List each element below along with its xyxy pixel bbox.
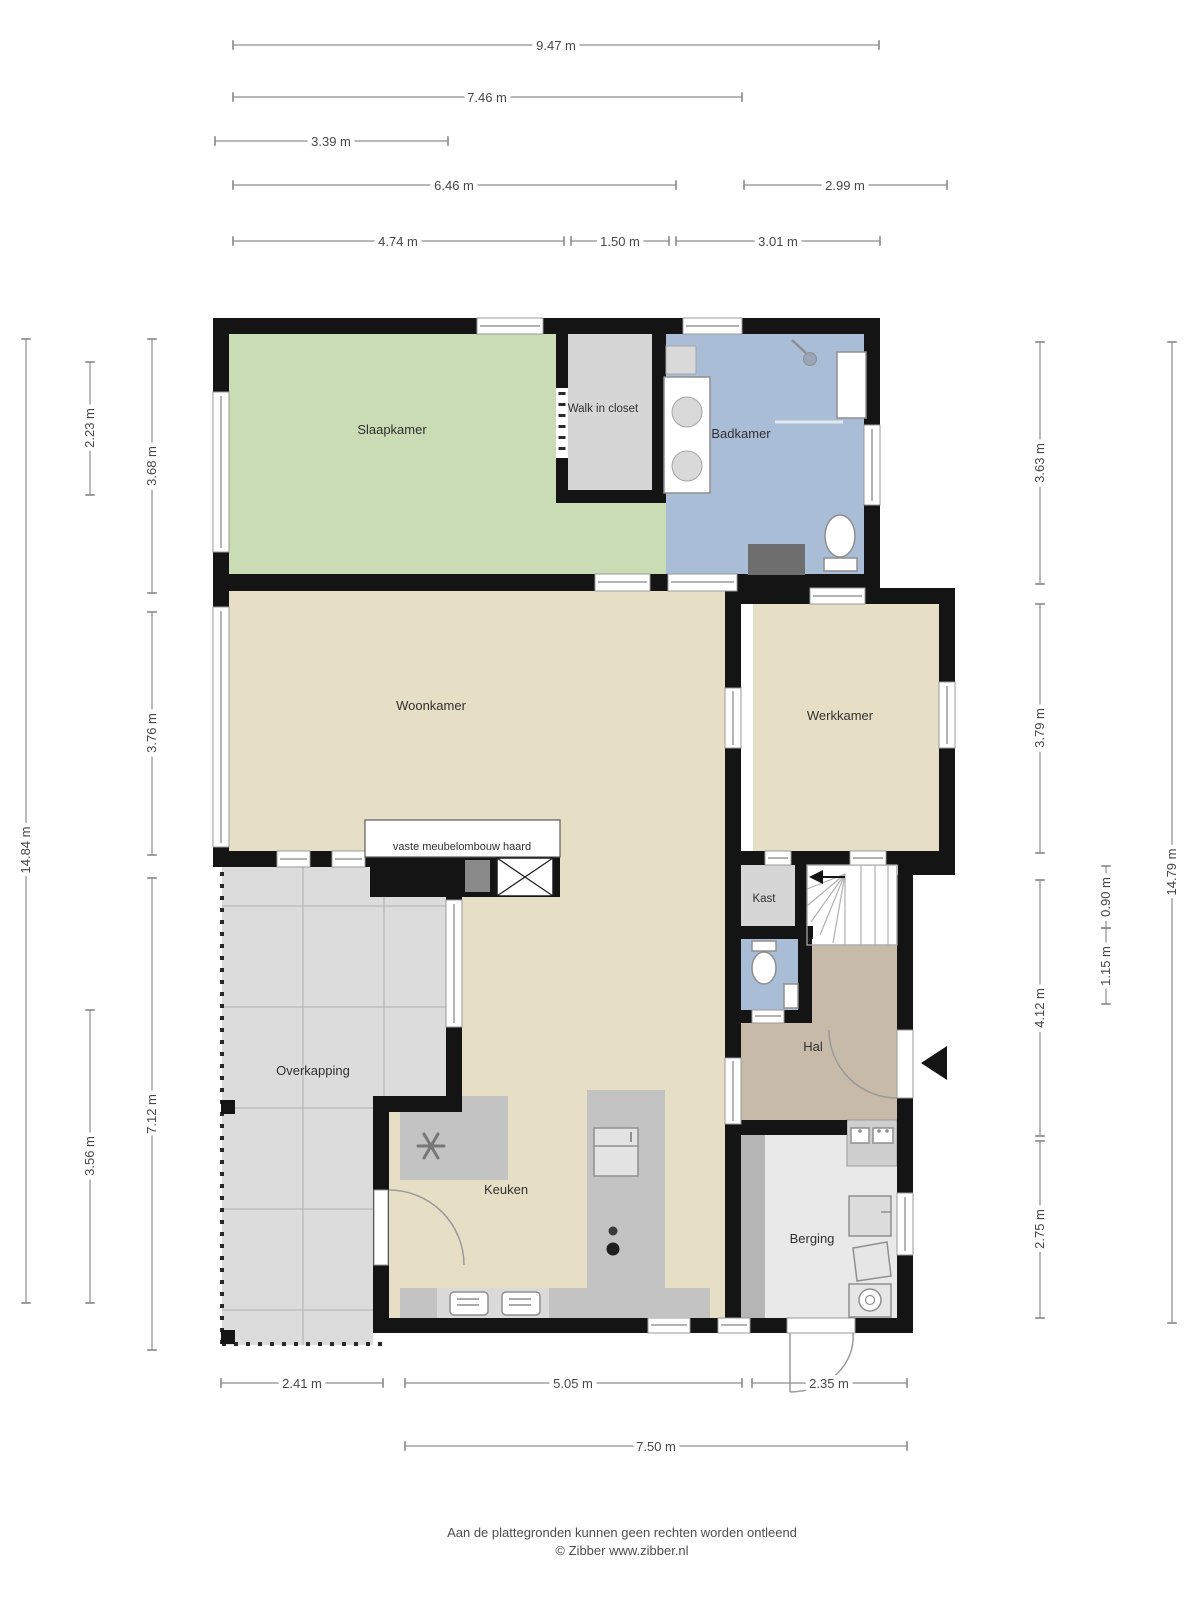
kitchen-island — [587, 1090, 665, 1290]
oven-icon — [502, 1292, 540, 1315]
label-walkincloset: Walk in closet — [568, 403, 639, 415]
window — [595, 574, 650, 591]
footer-disclaimer: Aan de plattegronden kunnen geen rechten… — [447, 1525, 797, 1540]
room-werkkamer-floor — [753, 604, 939, 851]
window — [850, 851, 886, 865]
room-keuken-floor — [462, 897, 725, 1096]
wall — [737, 1120, 847, 1135]
door-wc — [752, 1010, 784, 1023]
dimension-label: 5.05 m — [553, 1376, 593, 1391]
washing-machine-icon — [849, 1284, 891, 1317]
window — [332, 851, 365, 867]
label-overkapping: Overkapping — [276, 1063, 350, 1078]
berging-cabinet-strip — [741, 1135, 765, 1318]
dimension-label: 6.46 m — [434, 178, 474, 193]
room-slaapkamer-floor — [556, 503, 666, 575]
dimension-label: 3.39 m — [311, 134, 351, 149]
label-werkkamer: Werkkamer — [807, 708, 874, 723]
sink-icon — [672, 397, 702, 427]
dimension-label: 9.47 m — [536, 38, 576, 53]
post — [221, 1100, 235, 1114]
shower-niche — [837, 352, 866, 418]
oven-icon — [450, 1292, 488, 1315]
dimension-label: 2.75 m — [1032, 1209, 1047, 1249]
toilet-icon — [824, 515, 857, 571]
window — [213, 392, 229, 552]
sink-icon — [672, 451, 702, 481]
dimension-label: 2.23 m — [82, 408, 97, 448]
dimension-label: 7.12 m — [144, 1094, 159, 1134]
door-hal-keuken — [725, 1058, 741, 1124]
footer-credit: © Zibber www.zibber.nl — [555, 1543, 688, 1558]
dimension-label: 2.41 m — [282, 1376, 322, 1391]
label-keuken: Keuken — [484, 1182, 528, 1197]
dimensions-bottom: 2.41 m 5.05 m 2.35 m 7.50 m — [221, 1376, 907, 1454]
dimension-label: 1.15 m — [1098, 946, 1113, 986]
dimension-label: 14.79 m — [1164, 849, 1179, 896]
bathroom-cabinet — [666, 346, 696, 374]
wall — [213, 318, 880, 334]
footer: Aan de plattegronden kunnen geen rechten… — [447, 1525, 797, 1558]
window — [477, 318, 543, 334]
window — [939, 682, 955, 748]
fridge-icon — [594, 1128, 638, 1176]
dimension-label: 2.99 m — [825, 178, 865, 193]
dimensions-left: 2.23 m 3.68 m 3.76 m 14.84 m 7.12 m 3.56… — [18, 339, 159, 1350]
window — [897, 1193, 913, 1255]
dimension-label: 1.50 m — [600, 234, 640, 249]
dimension-label: 3.79 m — [1032, 708, 1047, 748]
room-slaapkamer-floor — [229, 333, 556, 575]
sink-icon — [873, 1128, 893, 1143]
wall — [898, 851, 955, 875]
window — [765, 851, 791, 865]
dimension-label: 3.01 m — [758, 234, 798, 249]
fireplace-insert — [465, 860, 490, 892]
label-badkamer: Badkamer — [711, 426, 771, 441]
dimension-label: 3.68 m — [144, 446, 159, 486]
door-werkkamer — [725, 688, 741, 748]
cabinet-icon — [849, 1196, 891, 1236]
dimension-label: 4.12 m — [1032, 988, 1047, 1028]
window — [213, 607, 229, 847]
room-woonkamer-floor — [229, 591, 725, 851]
flue-icon — [497, 858, 553, 896]
label-berging: Berging — [790, 1231, 835, 1246]
label-slaapkamer: Slaapkamer — [357, 422, 427, 437]
window — [648, 1318, 690, 1333]
wall — [556, 490, 666, 503]
dimensions-right: 3.63 m 3.79 m 0.90 m 1.15 m 4.12 m 2.75 … — [1032, 342, 1179, 1323]
dimension-label: 3.56 m — [82, 1136, 97, 1176]
dimension-label: 0.90 m — [1098, 877, 1113, 917]
post — [221, 1330, 235, 1344]
window — [683, 318, 742, 334]
sink-icon — [784, 984, 798, 1008]
wall — [897, 875, 913, 1333]
window — [446, 900, 462, 1027]
laundry-basket-icon — [853, 1242, 891, 1281]
dimension-label: 3.76 m — [144, 713, 159, 753]
dimension-label: 3.63 m — [1032, 443, 1047, 483]
dimensions-top: 9.47 m 7.46 m 3.39 m 6.46 m 2.99 m 4.74 … — [215, 38, 947, 249]
dimension-label: 2.35 m — [809, 1376, 849, 1391]
window — [810, 588, 865, 604]
bathroom-dark-cabinet — [748, 544, 805, 575]
wall — [798, 926, 812, 1023]
dimension-label: 4.74 m — [378, 234, 418, 249]
kitchen-counter — [462, 1096, 508, 1180]
toilet-icon — [752, 941, 776, 984]
entrance-arrow-icon — [921, 1046, 947, 1080]
room-living-open-floor — [560, 851, 725, 897]
window — [668, 574, 737, 591]
label-fireplace-annotation: vaste meubelombouw haard — [393, 841, 531, 853]
dimension-label: 7.50 m — [636, 1439, 676, 1454]
label-woonkamer: Woonkamer — [396, 698, 467, 713]
floorplan-canvas: Slaapkamer Walk in closet Badkamer Woonk… — [0, 0, 1200, 1600]
window — [718, 1318, 750, 1333]
window — [277, 851, 310, 867]
dimension-label: 14.84 m — [18, 827, 33, 874]
label-kast: Kast — [752, 893, 776, 905]
wall — [556, 333, 568, 388]
window — [864, 425, 880, 505]
dimension-label: 7.46 m — [467, 90, 507, 105]
label-hal: Hal — [803, 1039, 823, 1054]
